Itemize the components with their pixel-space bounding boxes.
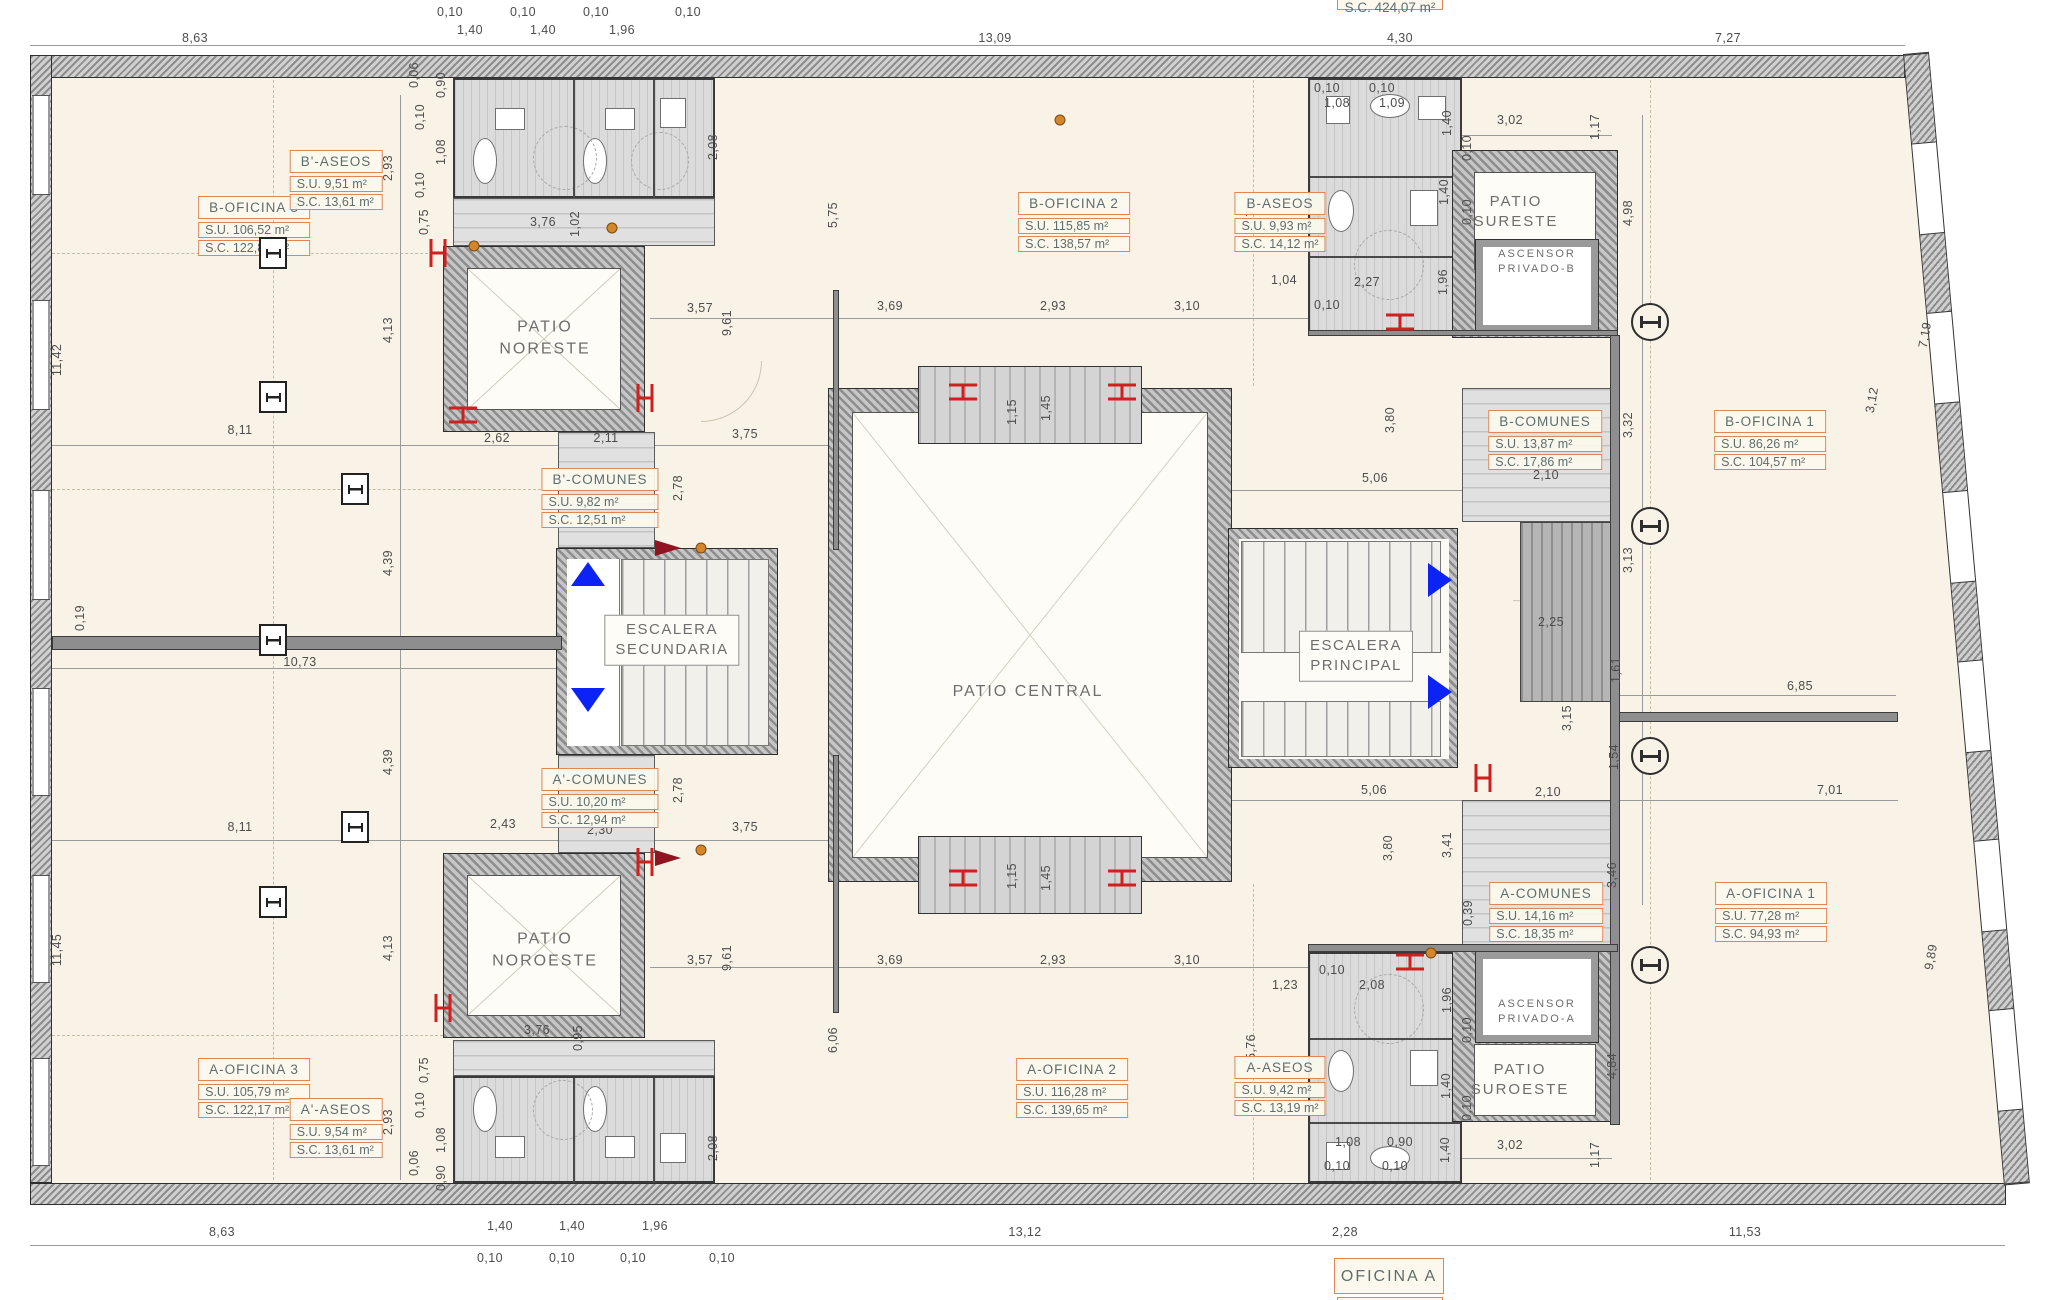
- dimension-label: 0,90: [434, 1165, 448, 1191]
- dimension-label: 0,10: [549, 1251, 575, 1265]
- column-marker: [341, 473, 369, 505]
- dimension-label: 2,25: [1538, 615, 1564, 629]
- room-sc: S.C. 138,57 m²: [1018, 236, 1130, 252]
- room-area-box: B-OFICINA 2S.U. 115,85 m²S.C. 138,57 m²: [1018, 192, 1130, 252]
- room-title: B-ASEOS: [1234, 192, 1325, 215]
- room-sc: S.C. 18,35 m²: [1489, 926, 1603, 942]
- room-area-box: A-COMUNESS.U. 14,16 m²S.C. 18,35 m²: [1489, 882, 1603, 942]
- room-area-box: A-ASEOSS.U. 9,42 m²S.C. 13,19 m²: [1234, 1056, 1325, 1116]
- room-su: S.U. 10,20 m²: [541, 794, 658, 810]
- room-su: S.U. 9,42 m²: [1234, 1082, 1325, 1098]
- partition-wall-a-aseos-north: [1308, 944, 1618, 952]
- dimension-label: 3,32: [1621, 412, 1635, 438]
- dimension-label: 5,75: [826, 202, 840, 228]
- total-area-box: S.C. 424,07 m²: [1337, 0, 1443, 10]
- dimension-line: [650, 967, 1310, 968]
- dimension-label: 3,02: [1497, 1138, 1523, 1152]
- grid-column-marker: [1631, 507, 1669, 545]
- dimension-label: 4,98: [1621, 200, 1635, 226]
- dimension-label: 3,69: [877, 299, 903, 313]
- grid-axis-line: [52, 1035, 443, 1036]
- dimension-label: 1,17: [1588, 1142, 1602, 1168]
- dimension-label: 0,95: [571, 1025, 585, 1051]
- room-su: S.U. 9,82 m²: [541, 494, 658, 510]
- dimension-label: 0,10: [413, 1092, 427, 1118]
- dimension-label: 3,80: [1383, 407, 1397, 433]
- outer-wall-bottom: [30, 1183, 2006, 1205]
- dimension-label: 4,13: [381, 317, 395, 343]
- dimension-label: 1,40: [559, 1219, 585, 1233]
- entry-steps-north: [453, 198, 715, 246]
- dimension-label: 2,27: [1354, 275, 1380, 289]
- gallery-north: [918, 366, 1142, 444]
- dimension-label: 3,75: [732, 820, 758, 834]
- column-marker: [259, 237, 287, 269]
- room-title: B-OFICINA 2: [1018, 192, 1130, 215]
- dimension-label: 0,10: [1314, 81, 1340, 95]
- dimension-line: [52, 445, 830, 446]
- dimension-line: [30, 45, 1905, 46]
- room-area-box: B-OFICINA 1S.U. 86,26 m²S.C. 104,57 m²: [1714, 410, 1826, 470]
- dimension-label: 1,08: [434, 1127, 448, 1153]
- stair-direction-arrow: [571, 562, 605, 586]
- dimension-label: 1,40: [1440, 110, 1454, 136]
- dimension-label: 2,08: [1359, 978, 1385, 992]
- dimension-line: [30, 1245, 2005, 1246]
- dimension-label: 0,75: [417, 1057, 431, 1083]
- dimension-label: 1,45: [1039, 865, 1053, 891]
- dimension-label: 3,57: [687, 953, 713, 967]
- dimension-label: 1,09: [1379, 96, 1405, 110]
- dimension-label: 0,75: [417, 209, 431, 235]
- radiator-symbol: [637, 848, 654, 876]
- room-su: S.U. 115,85 m²: [1018, 218, 1130, 234]
- column-marker: [259, 624, 287, 656]
- dimension-label: 0,39: [1461, 900, 1475, 926]
- room-title: B-OFICINA 1: [1714, 410, 1826, 433]
- room-title: B'-COMUNES: [541, 468, 658, 491]
- room-su: S.U. 9,54 m²: [290, 1124, 383, 1140]
- dimension-label: 11,45: [50, 934, 64, 966]
- dimension-label: 1,96: [609, 23, 635, 37]
- room-area-box: A-OFICINA 2S.U. 116,28 m²S.C. 139,65 m²: [1016, 1058, 1128, 1118]
- flow-arrow: [655, 850, 681, 866]
- room-area-box: A-OFICINA 1S.U. 77,28 m²S.C. 94,93 m²: [1715, 882, 1827, 942]
- access-ramp: [1520, 522, 1612, 702]
- room-su: S.U. 77,28 m²: [1715, 908, 1827, 924]
- dimension-label: 0,10: [583, 5, 609, 19]
- door-handle-dot: [1426, 948, 1437, 959]
- dimension-label: 5,06: [1362, 471, 1388, 485]
- dimension-label: 0,10: [1324, 1159, 1350, 1173]
- space-label: PATIONOROESTE: [492, 928, 598, 971]
- room-sc: S.C. 139,65 m²: [1016, 1102, 1128, 1118]
- partition-wall-ab-right: [1618, 712, 1898, 722]
- radiator-symbol: [949, 870, 977, 887]
- partition-wall-a2-west: [833, 755, 839, 1013]
- window: [32, 1058, 50, 1166]
- dimension-label: 2,10: [1535, 785, 1561, 799]
- radiator-symbol: [435, 994, 452, 1022]
- dimension-label: 11,42: [50, 344, 64, 376]
- dimension-label: 1,08: [434, 139, 448, 165]
- dimension-label: 2,93: [1040, 299, 1066, 313]
- room-title: B'-ASEOS: [290, 150, 383, 173]
- grid-axis-line: [1650, 80, 1651, 1180]
- dimension-label: 9,61: [720, 310, 734, 336]
- dimension-label: 1,08: [1335, 1135, 1361, 1149]
- dimension-label: 1,40: [487, 1219, 513, 1233]
- room-title: A'-COMUNES: [541, 768, 658, 791]
- dimension-label: 8,11: [227, 820, 252, 834]
- dimension-label: 11,53: [1729, 1225, 1761, 1239]
- room-sc: S.C. 104,57 m²: [1714, 454, 1826, 470]
- partition-wall-b2-west: [833, 290, 839, 550]
- radiator-symbol: [1386, 314, 1414, 331]
- dimension-label: 1,40: [530, 23, 556, 37]
- dimension-label: 3,76: [530, 215, 556, 229]
- dimension-label: 13,12: [1008, 1225, 1041, 1239]
- dimension-label: 4,39: [381, 749, 395, 775]
- dimension-label: 2,93: [381, 1109, 395, 1135]
- room-su: S.U. 116,28 m²: [1016, 1084, 1128, 1100]
- grid-axis-line: [52, 489, 556, 490]
- dimension-label: 0,10: [477, 1251, 503, 1265]
- dimension-label: 0,10: [1314, 298, 1340, 312]
- dimension-label: 8,63: [182, 31, 208, 45]
- dimension-label: 0,10: [1460, 1095, 1474, 1121]
- space-label: ESCALERASECUNDARIA: [604, 615, 739, 666]
- dimension-label: 7,27: [1715, 31, 1741, 45]
- radiator-symbol: [949, 384, 977, 401]
- room-area-box: A'-ASEOSS.U. 9,54 m²S.C. 13,61 m²: [290, 1098, 383, 1158]
- grid-column-marker: [1631, 303, 1669, 341]
- dimension-label: 0,10: [1382, 1159, 1408, 1173]
- space-label: ASCENSORPRIVADO-B: [1498, 247, 1576, 277]
- dimension-line: [650, 318, 1310, 319]
- dimension-label: 1,02: [568, 211, 582, 237]
- dimension-label: 3,80: [1381, 835, 1395, 861]
- stair-direction-arrow: [571, 688, 605, 712]
- dimension-label: 8,63: [209, 1225, 235, 1239]
- dimension-label: 6,06: [826, 1027, 840, 1053]
- dimension-label: 0,10: [413, 172, 427, 198]
- room-title: A-OFICINA 2: [1016, 1058, 1128, 1081]
- dimension-label: 3,75: [732, 427, 758, 441]
- dimension-label: 2,08: [706, 134, 720, 160]
- dimension-label: 13,09: [978, 31, 1011, 45]
- dimension-label: 1,23: [1272, 978, 1298, 992]
- room-sc: S.C. 12,51 m²: [541, 512, 658, 528]
- dimension-label: 7,01: [1817, 783, 1843, 797]
- window: [32, 875, 50, 983]
- dimension-label: 3,69: [877, 953, 903, 967]
- dimension-label: 0,10: [413, 104, 427, 130]
- dimension-label: 2,43: [490, 817, 516, 831]
- dimension-label: 1,96: [1440, 987, 1454, 1013]
- room-title: A-OFICINA 3: [198, 1058, 310, 1081]
- grid-column-marker: [1631, 946, 1669, 984]
- dimension-label: 0,19: [73, 605, 87, 631]
- room-area-box: B'-COMUNESS.U. 9,82 m²S.C. 12,51 m²: [541, 468, 658, 528]
- space-label: PATIOSURESTE: [1474, 192, 1559, 233]
- dimension-label: 4,84: [1605, 1053, 1619, 1079]
- room-area-box: B-COMUNESS.U. 13,87 m²S.C. 17,86 m²: [1488, 410, 1602, 470]
- room-su: S.U. 9,51 m²: [290, 176, 383, 192]
- outer-wall-left: [30, 55, 52, 1183]
- room-area-box: B-ASEOSS.U. 9,93 m²S.C. 14,12 m²: [1234, 192, 1325, 252]
- room-sc: S.C. 94,93 m²: [1715, 926, 1827, 942]
- bathroom-block-b-aseos: [1308, 78, 1462, 335]
- dimension-label: 1,40: [1437, 179, 1451, 205]
- dimension-label: 1,40: [1438, 1137, 1452, 1163]
- room-sc: S.C. 13,61 m²: [290, 1142, 383, 1158]
- dimension-label: 1,96: [642, 1219, 668, 1233]
- floor-plan-drawing: S.C. 424,07 m² OFICINA A 8,630,101,400,1…: [0, 0, 2050, 1300]
- stair-direction-arrow: [1428, 563, 1452, 597]
- dimension-label: 0,90: [434, 72, 448, 98]
- stair-direction-arrow: [1428, 675, 1452, 709]
- dimension-line: [52, 840, 830, 841]
- room-title: A-COMUNES: [1489, 882, 1603, 905]
- space-label: PATIO CENTRAL: [953, 681, 1104, 703]
- dimension-label: 5,06: [1361, 783, 1387, 797]
- patio-central: [852, 412, 1208, 858]
- radiator-symbol: [449, 407, 477, 424]
- window: [32, 490, 50, 600]
- dimension-label: 1,40: [1439, 1073, 1453, 1099]
- room-title: A-ASEOS: [1234, 1056, 1325, 1079]
- dimension-label: 4,13: [381, 935, 395, 961]
- dimension-label: 0,10: [1460, 135, 1474, 161]
- space-label: PATIONORESTE: [499, 316, 590, 359]
- dimension-label: 0,10: [1369, 81, 1395, 95]
- dimension-label: 10,73: [283, 655, 316, 669]
- room-area-box: A'-COMUNESS.U. 10,20 m²S.C. 12,94 m²: [541, 768, 658, 828]
- dimension-label: 8,11: [227, 423, 252, 437]
- room-sc: S.C. 17,86 m²: [1488, 454, 1602, 470]
- dimension-label: 1,61: [1609, 657, 1623, 683]
- partition-wall-b-aseos-south: [1308, 330, 1618, 336]
- dimension-label: 0,10: [620, 1251, 646, 1265]
- dimension-label: 4,30: [1387, 31, 1413, 45]
- dimension-label: 0,10: [675, 5, 701, 19]
- dimension-label: 1,15: [1005, 399, 1019, 425]
- window: [32, 95, 50, 195]
- dimension-label: 2,08: [706, 1135, 720, 1161]
- radiator-symbol: [1108, 870, 1136, 887]
- bathroom-block-a-prime-aseos: [453, 1076, 715, 1183]
- dimension-label: 3,76: [524, 1023, 550, 1037]
- room-sc: S.C. 122,82 m²: [198, 240, 310, 256]
- bathroom-block-b-prime-aseos: [453, 78, 715, 198]
- column-marker: [259, 381, 287, 413]
- sheet-title-box: OFICINA A: [1334, 1258, 1444, 1294]
- room-title: A-OFICINA 1: [1715, 882, 1827, 905]
- dimension-label: 2,93: [1040, 953, 1066, 967]
- door-handle-dot: [469, 241, 480, 252]
- dimension-label: 0,10: [1460, 199, 1474, 225]
- dimension-label: 2,93: [381, 155, 395, 181]
- window: [32, 688, 50, 796]
- space-label: ESCALERAPRINCIPAL: [1299, 631, 1413, 682]
- radiator-symbol: [1475, 764, 1492, 792]
- total-area-label: S.C. 424,07 m²: [1345, 0, 1436, 15]
- dimension-label: 3,02: [1497, 113, 1523, 127]
- dimension-label: 3,13: [1621, 547, 1635, 573]
- dimension-label: 3,10: [1174, 299, 1200, 313]
- column-marker: [341, 811, 369, 843]
- dimension-label: 1,15: [1005, 863, 1019, 889]
- room-su: S.U. 86,26 m²: [1714, 436, 1826, 452]
- dimension-label: 9,61: [720, 945, 734, 971]
- dimension-label: 2,62: [484, 431, 510, 445]
- partition-wall-ab-left: [52, 636, 562, 650]
- sheet-title-label: OFICINA A: [1341, 1268, 1437, 1285]
- room-su: S.U. 14,16 m²: [1489, 908, 1603, 924]
- dimension-label: 2,11: [593, 431, 618, 445]
- dimension-label: 6,85: [1787, 679, 1813, 693]
- dimension-label: 1,04: [1271, 273, 1297, 287]
- room-title: A'-ASEOS: [290, 1098, 383, 1121]
- dimension-label: 0,10: [709, 1251, 735, 1265]
- dimension-label: 1,54: [1607, 744, 1621, 770]
- dimension-label: 1,96: [1436, 269, 1450, 295]
- room-area-box: B'-ASEOSS.U. 9,51 m²S.C. 13,61 m²: [290, 150, 383, 210]
- radiator-symbol: [430, 239, 447, 267]
- dimension-label: 3,46: [1605, 862, 1619, 888]
- dimension-label: 4,39: [381, 550, 395, 576]
- dimension-label: 2,10: [1533, 468, 1559, 482]
- room-su: S.U. 106,52 m²: [198, 222, 310, 238]
- flow-arrow: [655, 540, 681, 556]
- dimension-label: 0,10: [437, 5, 463, 19]
- dimension-label: 1,08: [1324, 96, 1350, 110]
- door-handle-dot: [696, 543, 707, 554]
- dimension-label: 0,10: [510, 5, 536, 19]
- room-su: S.U. 13,87 m²: [1488, 436, 1602, 452]
- dimension-label: 1,40: [457, 23, 483, 37]
- room-su: S.U. 9,93 m²: [1234, 218, 1325, 234]
- dimension-label: 3,10: [1174, 953, 1200, 967]
- room-sc: S.C. 13,19 m²: [1234, 1100, 1325, 1116]
- dimension-label: 0,06: [407, 62, 421, 88]
- column-marker: [259, 886, 287, 918]
- dimension-label: 0,06: [407, 1150, 421, 1176]
- room-sc: S.C. 14,12 m²: [1234, 236, 1325, 252]
- room-sc: S.C. 13,61 m²: [290, 194, 383, 210]
- radiator-symbol: [637, 384, 654, 412]
- dimension-label: 1,45: [1039, 395, 1053, 421]
- space-label: PATIOSUROESTE: [1471, 1060, 1570, 1101]
- dimension-label: 3,15: [1560, 705, 1574, 731]
- grid-axis-line: [1253, 884, 1254, 1180]
- dimension-label: 0,10: [1460, 1017, 1474, 1043]
- window: [32, 300, 50, 410]
- space-label: ASCENSORPRIVADO-A: [1498, 997, 1576, 1027]
- dimension-label: 0,90: [1387, 1135, 1413, 1149]
- dimension-label: 3,57: [687, 301, 713, 315]
- dimension-label: 2,28: [1332, 1225, 1358, 1239]
- radiator-symbol: [1396, 954, 1424, 971]
- dimension-line: [1618, 695, 1896, 696]
- outer-wall-top: [30, 55, 1905, 78]
- radiator-symbol: [1108, 384, 1136, 401]
- room-title: B-COMUNES: [1488, 410, 1602, 433]
- dimension-label: 3,41: [1440, 832, 1454, 858]
- dimension-label: 2,78: [671, 475, 685, 501]
- room-sc: S.C. 12,94 m²: [541, 812, 658, 828]
- door-handle-dot: [607, 223, 618, 234]
- partition-wall-east-core: [1610, 335, 1620, 1125]
- grid-column-marker: [1631, 737, 1669, 775]
- dimension-label: 1,17: [1588, 114, 1602, 140]
- door-handle-dot: [696, 845, 707, 856]
- dimension-label: 0,10: [1319, 963, 1345, 977]
- dimension-label: 2,78: [671, 777, 685, 803]
- door-handle-dot: [1055, 115, 1066, 126]
